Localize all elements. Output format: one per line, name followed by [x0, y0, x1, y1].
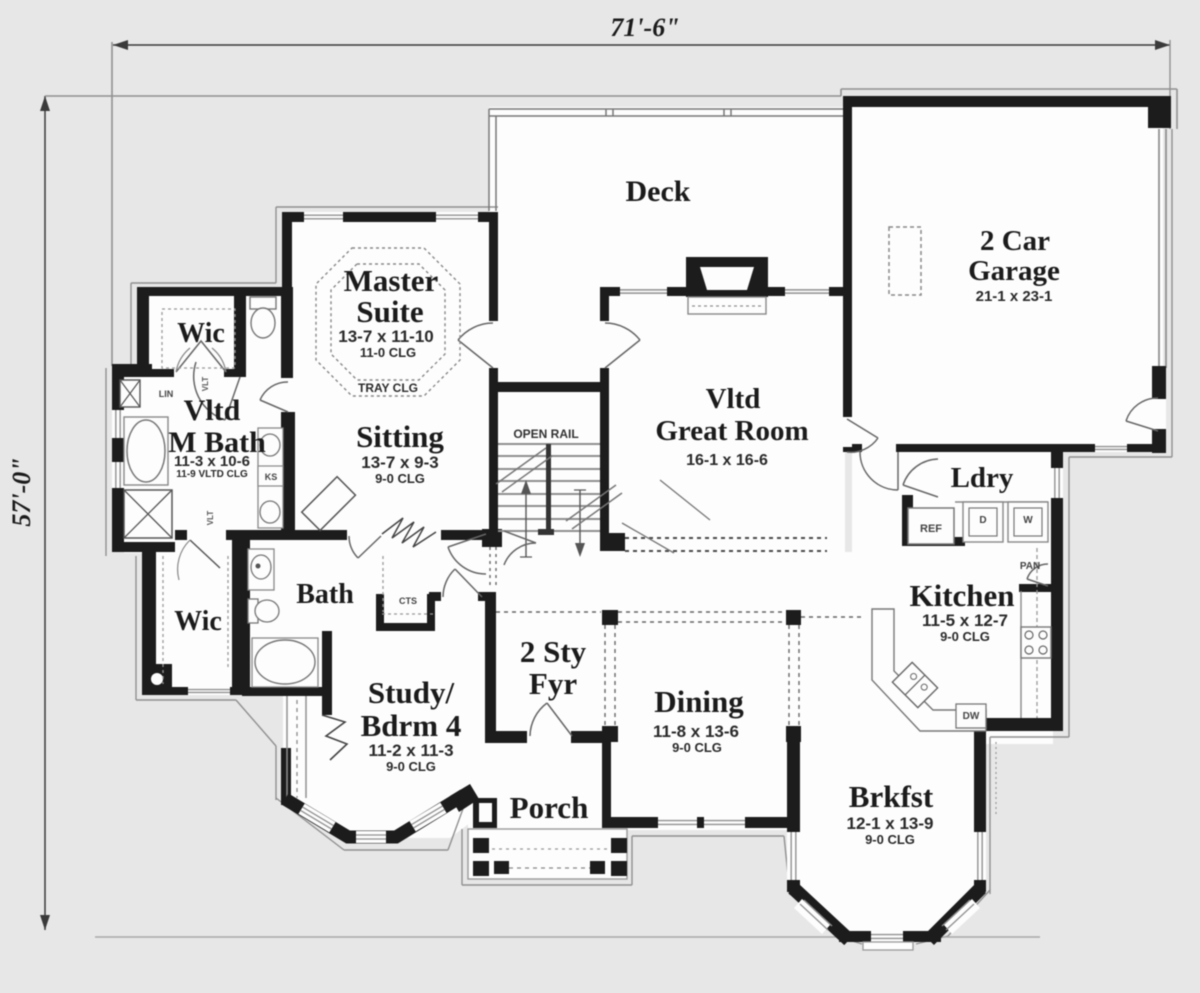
- svg-text:11-5 x 12-7: 11-5 x 12-7: [922, 611, 1008, 630]
- svg-text:PAN: PAN: [1020, 561, 1040, 572]
- svg-text:Great Room: Great Room: [655, 415, 808, 447]
- svg-text:DW: DW: [963, 711, 980, 722]
- svg-text:Bdrm 4: Bdrm 4: [361, 708, 462, 743]
- svg-text:TRAY CLG: TRAY CLG: [358, 381, 418, 395]
- svg-text:Garage: Garage: [968, 255, 1060, 287]
- svg-text:KS: KS: [265, 472, 278, 482]
- svg-text:12-1 x 13-9: 12-1 x 13-9: [847, 814, 934, 833]
- svg-text:Sitting: Sitting: [356, 419, 444, 454]
- svg-text:21-1 x 23-1: 21-1 x 23-1: [976, 288, 1053, 305]
- svg-text:9-0 CLG: 9-0 CLG: [672, 740, 722, 755]
- svg-text:Brkfst: Brkfst: [849, 779, 934, 814]
- svg-text:Vltd: Vltd: [706, 383, 761, 415]
- svg-text:9-0 CLG: 9-0 CLG: [375, 471, 425, 486]
- svg-text:11-0 CLG: 11-0 CLG: [360, 345, 416, 360]
- svg-text:9-0 CLG: 9-0 CLG: [386, 759, 436, 774]
- svg-text:9-0 CLG: 9-0 CLG: [865, 832, 915, 847]
- svg-text:REF: REF: [920, 523, 942, 535]
- svg-text:9-0 CLG: 9-0 CLG: [940, 629, 990, 644]
- svg-text:11-8 x 13-6: 11-8 x 13-6: [653, 722, 739, 741]
- svg-text:Suite: Suite: [356, 294, 423, 329]
- svg-text:Deck: Deck: [626, 175, 691, 208]
- svg-text:13-7 x 11-10: 13-7 x 11-10: [338, 327, 433, 346]
- svg-text:16-1 x 16-6: 16-1 x 16-6: [686, 452, 768, 469]
- svg-text:Master: Master: [344, 263, 439, 298]
- svg-text:VLT: VLT: [206, 511, 215, 526]
- svg-text:71'-6": 71'-6": [610, 13, 679, 42]
- svg-text:OPEN RAIL: OPEN RAIL: [513, 427, 578, 441]
- svg-text:2 Car: 2 Car: [980, 225, 1050, 257]
- svg-text:LIN: LIN: [159, 389, 174, 399]
- svg-text:W: W: [1023, 515, 1033, 526]
- svg-text:CTS: CTS: [399, 596, 417, 606]
- svg-text:Porch: Porch: [510, 790, 589, 825]
- svg-text:2 Sty: 2 Sty: [520, 634, 587, 669]
- svg-text:Wic: Wic: [177, 318, 225, 349]
- svg-text:Vltd: Vltd: [184, 394, 241, 427]
- svg-text:11-3 x 10-6: 11-3 x 10-6: [174, 453, 250, 470]
- svg-text:11-9 VLTD CLG: 11-9 VLTD CLG: [176, 469, 248, 480]
- svg-text:Wic: Wic: [174, 606, 222, 637]
- svg-text:Dining: Dining: [654, 684, 744, 719]
- svg-text:Ldry: Ldry: [951, 462, 1014, 494]
- svg-text:57'-0": 57'-0": [7, 457, 36, 526]
- svg-text:Bath: Bath: [296, 579, 354, 610]
- svg-text:Kitchen: Kitchen: [909, 578, 1014, 613]
- svg-text:Fyr: Fyr: [529, 666, 577, 701]
- svg-text:VLT: VLT: [201, 377, 210, 392]
- svg-text:D: D: [979, 515, 986, 526]
- svg-text:11-2 x 11-3: 11-2 x 11-3: [368, 741, 453, 760]
- svg-text:13-7 x 9-3: 13-7 x 9-3: [361, 453, 439, 472]
- svg-text:Study/: Study/: [368, 675, 455, 710]
